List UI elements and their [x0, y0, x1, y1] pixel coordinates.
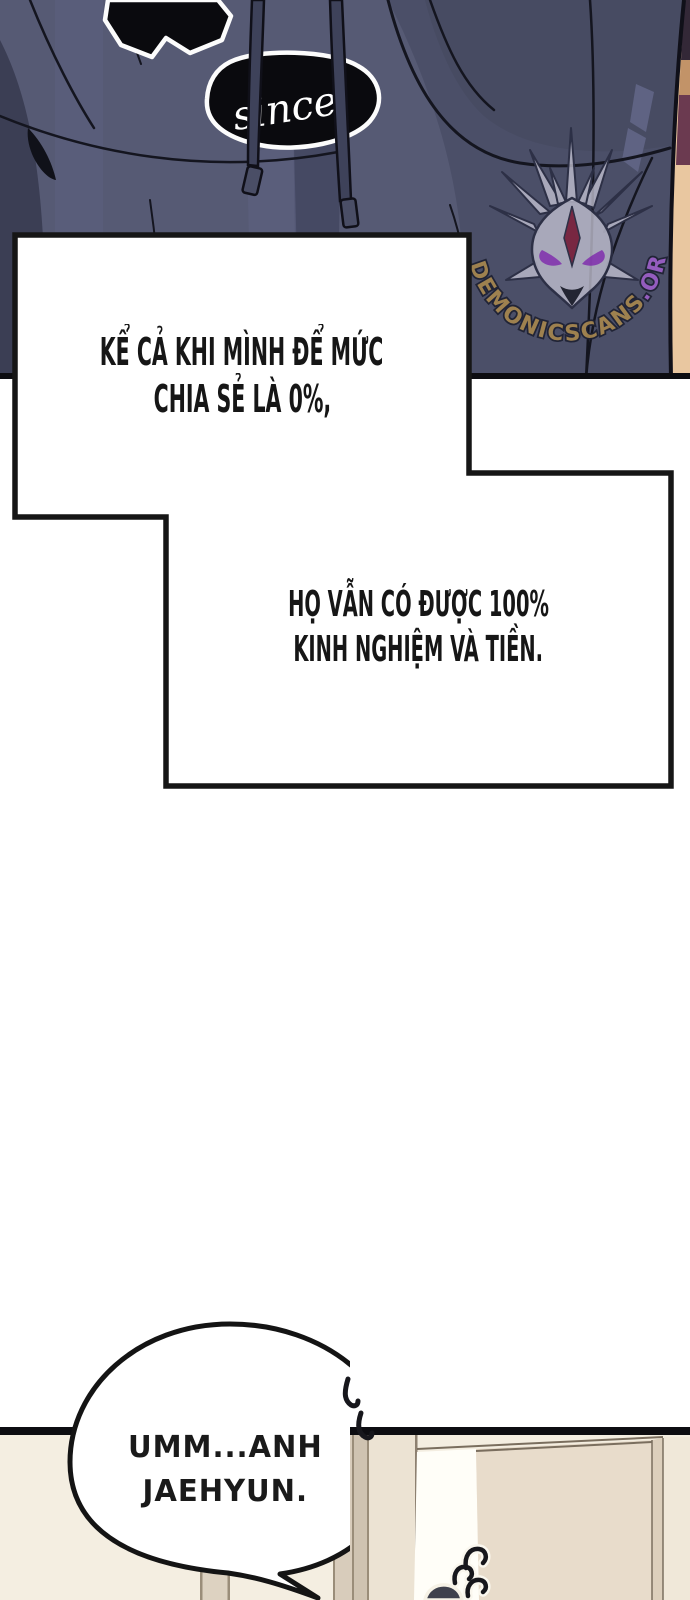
right-wall: [664, 1437, 690, 1600]
caption-boxes-shape: [15, 235, 671, 786]
bubble-line2: JAEHYUN.: [142, 1470, 307, 1514]
caption-box-1: KỂ CẢ KHI MÌNH ĐỂ MỨC CHIA SẺ LÀ 0%,: [15, 329, 469, 423]
aglet-right: [340, 198, 358, 228]
caption-boxes-outline: [0, 225, 690, 800]
skin-shadow: [679, 60, 690, 95]
bubble-line1: UMM...ANH: [128, 1426, 323, 1470]
caption1-line1: KỂ CẢ KHI MÌNH ĐỂ MỨC: [100, 329, 384, 376]
caption2-line2: KINH NGHIỆM VÀ TIỀN.: [294, 627, 544, 672]
hesitation-marks: [330, 1365, 390, 1450]
door-edge-strip: [652, 1438, 663, 1600]
caption1-line2: CHIA SẺ LÀ 0%,: [153, 376, 331, 423]
webtoon-page: since: [0, 0, 690, 1600]
caption2-line1: HỌ VẪN CÓ ĐƯỢC 100%: [288, 582, 549, 627]
door-face: [476, 1440, 652, 1600]
caption-box-2: HỌ VẪN CÓ ĐƯỢC 100% KINH NGHIỆM VÀ TIỀN.: [166, 582, 671, 672]
